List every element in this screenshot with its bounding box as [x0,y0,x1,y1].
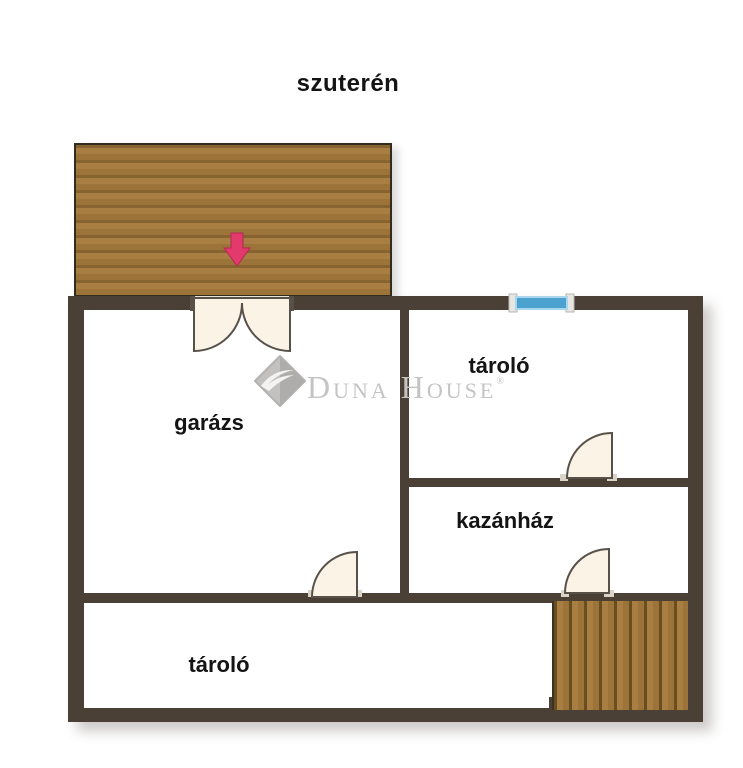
wall-top-right [567,296,703,310]
stairs-icon [552,601,688,710]
wall-bottom [68,708,703,722]
page-title: szuterén [297,70,400,98]
wall-storage-boiler-divider [409,478,688,487]
room-label-storage-upper: tároló [468,353,529,379]
wall-garage-divider [400,310,409,603]
wall-right [688,296,703,722]
basement-floorplan: szuterén [0,0,743,768]
room-label-boiler: kazánház [456,508,554,534]
driveway-ramp-icon [74,143,392,297]
room-label-storage-lower: tároló [188,652,249,678]
wall-top-middle [291,296,516,310]
room-label-garage: garázs [174,410,244,436]
wall-left [68,296,84,722]
wall-top-left [68,296,193,310]
